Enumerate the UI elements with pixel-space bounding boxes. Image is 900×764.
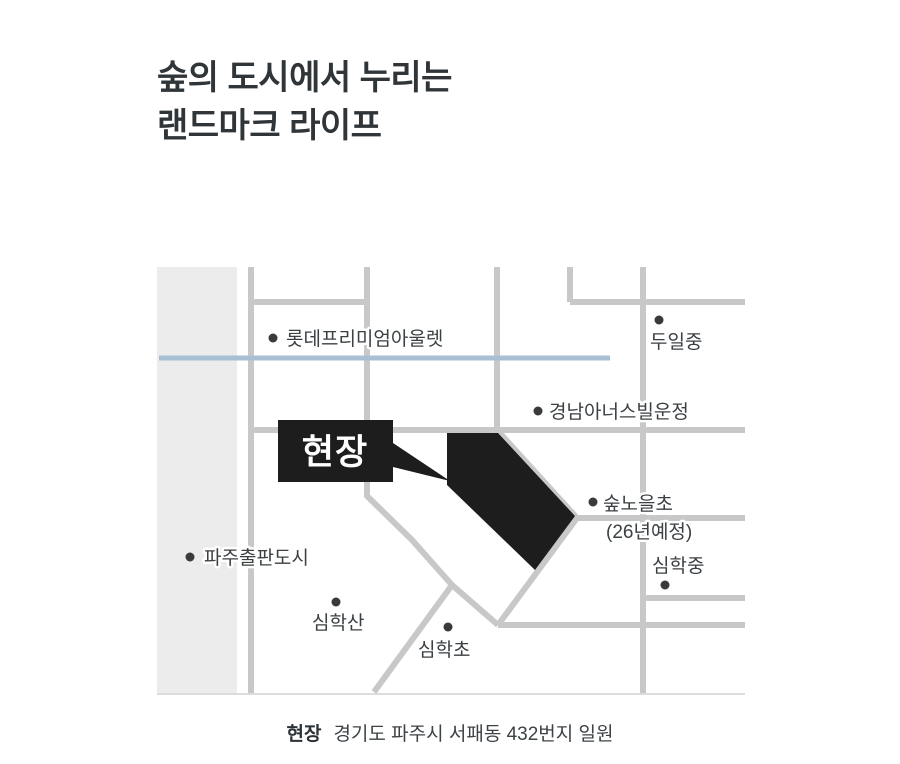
poi-dot-paju-publishing-city — [186, 553, 195, 562]
address-caption-prefix: 현장 — [286, 724, 321, 745]
poi-dot-simhak-elem — [444, 623, 453, 632]
poi-label-supnoeul-elem-line1: 숲노을초 — [603, 493, 673, 515]
poi-label-simhaksan: 심학산 — [312, 612, 364, 634]
poi-label-simhak-middle: 심학중 — [652, 555, 704, 577]
poi-label-supnoeul-elem-line2: (26년예정) — [606, 521, 692, 543]
address-caption-text: 경기도 파주시 서패동 432번지 일원 — [333, 724, 613, 745]
site-callout-label: 현장 — [302, 433, 368, 472]
site-callout-pointer — [393, 443, 450, 481]
road-fork-branch — [452, 585, 498, 625]
page-title-line2: 랜드마크 라이프 — [157, 102, 452, 150]
poi-dot-lotte-outlet — [269, 334, 278, 343]
poi-dot-simhaksan — [332, 598, 341, 607]
poi-label-duil-middle: 두일중 — [650, 331, 702, 353]
poi-label-paju-publishing-city: 파주출판도시 — [204, 547, 309, 569]
location-map: 롯데프리미엄아울렛 두일중 경남아너스빌운정 숲노을초 (26년예정) 심학중 … — [157, 267, 745, 695]
map-left-district-zone — [157, 267, 237, 693]
page-title: 숲의 도시에서 누리는 랜드마크 라이프 — [157, 54, 452, 150]
address-caption: 현장경기도 파주시 서패동 432번지 일원 — [0, 719, 900, 746]
poi-dot-gyeongnam-honorsville — [534, 407, 543, 416]
poi-label-gyeongnam-honorsville: 경남아너스빌운정 — [549, 401, 689, 423]
poi-dot-duil-middle — [655, 316, 664, 325]
poi-labels: 롯데프리미엄아울렛 두일중 경남아너스빌운정 숲노을초 (26년예정) 심학중 … — [204, 328, 704, 661]
location-map-canvas: 롯데프리미엄아울렛 두일중 경남아너스빌운정 숲노을초 (26년예정) 심학중 … — [157, 267, 745, 693]
poi-dot-supnoeul-elem — [589, 498, 598, 507]
poi-dot-simhak-middle — [661, 581, 670, 590]
poi-label-simhak-elem: 심학초 — [418, 639, 470, 661]
poi-label-lotte-outlet: 롯데프리미엄아울렛 — [286, 328, 443, 350]
page-title-line1: 숲의 도시에서 누리는 — [157, 54, 452, 102]
